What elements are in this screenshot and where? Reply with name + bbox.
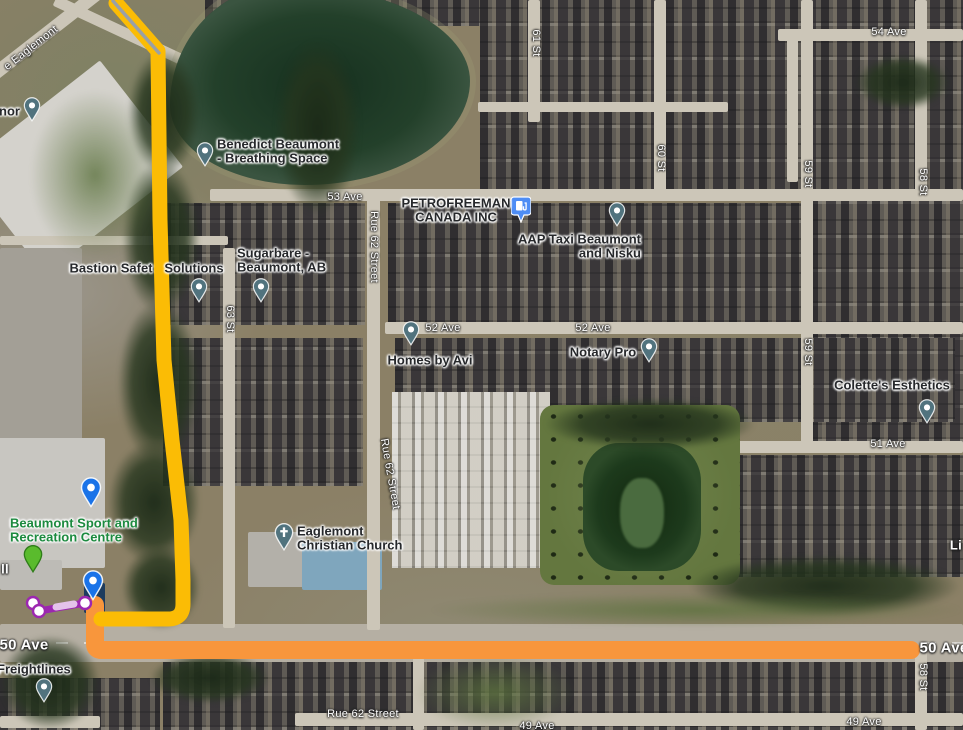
satellite-map-canvas[interactable]: e Eaglemont54 Ave61 St60 St59 St58 St53 … — [0, 0, 963, 730]
road-label: 50 Ave — [0, 637, 49, 654]
label-line: - Breathing Space — [217, 151, 339, 165]
road-label: 52 Ave — [425, 322, 460, 334]
route-walk-light[interactable] — [56, 604, 74, 607]
label-line: Homes by Avi — [387, 353, 472, 367]
walk-route-node[interactable] — [33, 605, 45, 617]
road-label: 58 St — [917, 663, 929, 690]
freightlines-pin[interactable] — [35, 678, 53, 708]
homes-by-avi-label[interactable]: Homes by Avi — [387, 353, 472, 367]
colettes-esthetics-pin[interactable] — [918, 399, 936, 429]
route-orange-50ave[interactable] — [95, 605, 911, 650]
road-label: ll — [1, 562, 9, 577]
notary-pro-label[interactable]: Notary Pro — [570, 345, 636, 359]
bastion-safety-label[interactable]: Bastion Safet — [69, 261, 152, 275]
bastion-solutions-label[interactable]: Solutions — [164, 261, 223, 275]
road-label: Li — [950, 538, 962, 553]
label-line: PETROFREEMAN — [401, 197, 510, 211]
recreation-centre-label[interactable]: Beaumont Sport andRecreation Centre — [10, 517, 138, 544]
label-line: Christian Church — [297, 538, 402, 552]
road-label: Rue 62 Street — [327, 708, 399, 720]
manor-pin[interactable] — [23, 97, 41, 127]
label-line: Notary Pro — [570, 345, 636, 359]
bastion-solutions-pin[interactable] — [190, 278, 208, 308]
colettes-esthetics-label[interactable]: Colette's Esthetics — [834, 378, 950, 392]
label-line: Colette's Esthetics — [834, 378, 950, 392]
label-line: nor — [0, 104, 20, 118]
label-line: Solutions — [164, 261, 223, 275]
label-line: Eaglemont — [297, 525, 402, 539]
waypoint-south-pin[interactable] — [81, 570, 105, 606]
aap-taxi-pin[interactable] — [608, 202, 626, 232]
road-label: 54 Ave — [871, 26, 906, 38]
label-line: AAP Taxi Beaumont — [518, 233, 641, 247]
road-label: 52 Ave — [575, 322, 610, 334]
benedict-beaumont-label[interactable]: Benedict Beaumont- Breathing Space — [217, 138, 339, 165]
label-line: Sugarbare - — [237, 247, 326, 261]
sugarbare-label[interactable]: Sugarbare -Beaumont, AB — [237, 247, 326, 274]
label-line: Freightlines — [0, 662, 71, 676]
road-label: 53 Ave — [327, 191, 362, 203]
label-line: Beaumont Sport and — [10, 517, 138, 531]
gas-station-pin[interactable] — [511, 196, 531, 228]
label-line: and Nisku — [518, 246, 641, 260]
benedict-beaumont-pin[interactable] — [196, 142, 214, 172]
road-label: 61 St — [530, 29, 542, 56]
manor-label[interactable]: nor — [0, 104, 20, 118]
road-label: 58 St — [917, 168, 929, 195]
label-line: Bastion Safet — [69, 261, 152, 275]
road-label: 50 Ave — [919, 640, 963, 657]
road-label: 63 St — [224, 305, 236, 332]
route-start-gray[interactable] — [113, 1, 159, 53]
label-line: Beaumont, AB — [237, 260, 326, 274]
road-label: Rue 62 Street — [368, 211, 380, 283]
waypoint-north-pin[interactable] — [79, 477, 103, 513]
homes-by-avi-pin[interactable] — [402, 321, 420, 351]
road-label: 51 Ave — [870, 438, 905, 450]
label-line: CANADA INC — [401, 210, 510, 224]
freightlines-label[interactable]: Freightlines — [0, 662, 71, 676]
road-label: 59 St — [802, 338, 814, 365]
road-label: 59 St — [802, 160, 814, 187]
green-marker-pin[interactable] — [23, 544, 43, 579]
road-label: 60 St — [655, 144, 667, 171]
label-line: Benedict Beaumont — [217, 138, 339, 152]
petrofreeman-label[interactable]: PETROFREEMANCANADA INC — [401, 197, 510, 224]
eaglemont-church-pin[interactable] — [274, 522, 294, 557]
road-label: 49 Ave — [519, 720, 554, 730]
aap-taxi-label[interactable]: AAP Taxi Beaumontand Nisku — [518, 233, 641, 260]
eaglemont-church-label[interactable]: EaglemontChristian Church — [297, 525, 402, 552]
road-label: 49 Ave — [846, 716, 881, 728]
sugarbare-pin[interactable] — [252, 278, 270, 308]
notary-pro-pin[interactable] — [640, 338, 658, 368]
label-line: Recreation Centre — [10, 530, 138, 544]
route-overlay — [0, 0, 963, 730]
